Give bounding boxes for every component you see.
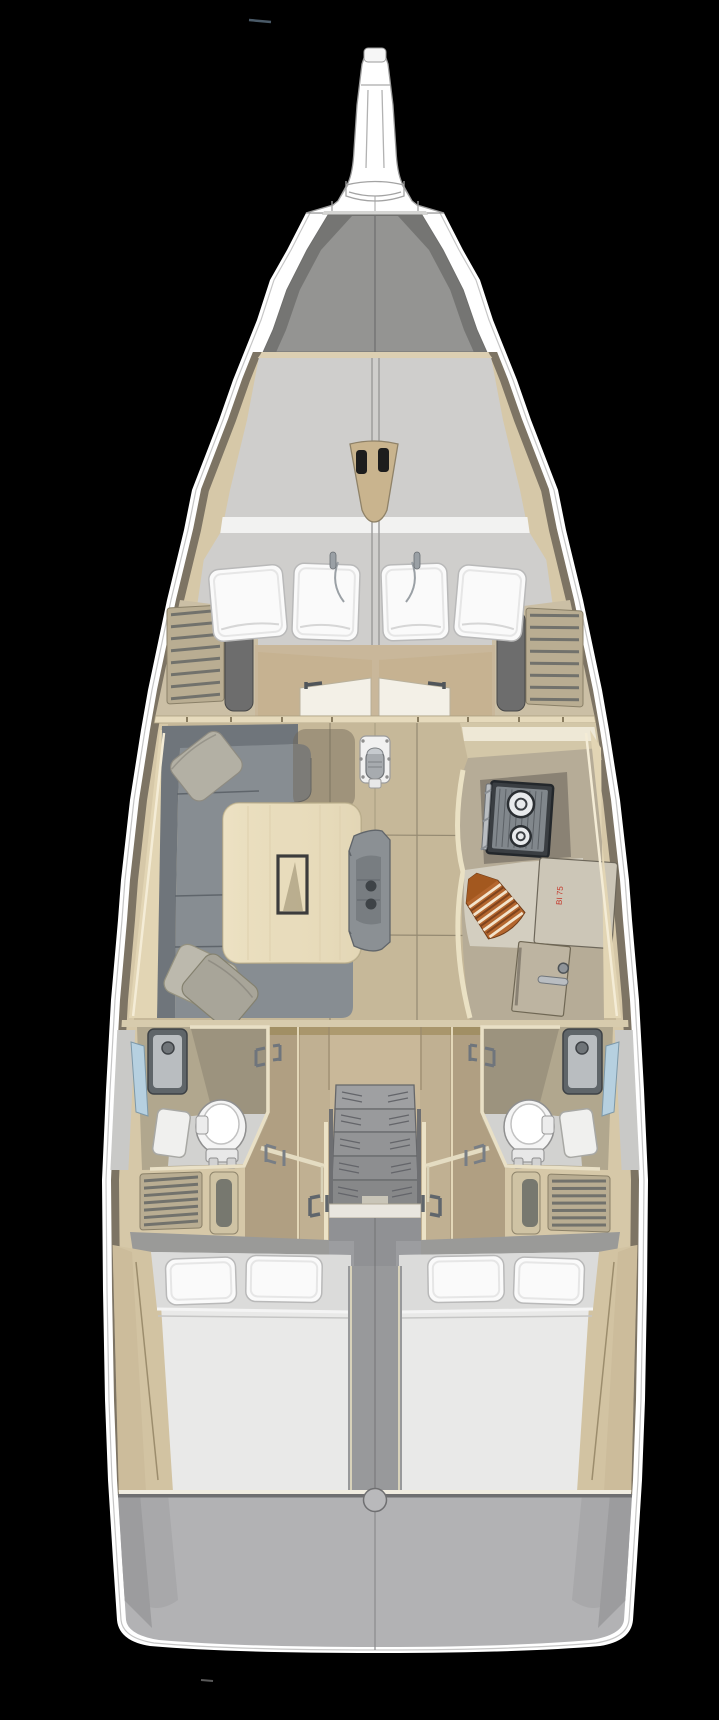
svg-text:BI 75: BI 75: [555, 885, 565, 905]
